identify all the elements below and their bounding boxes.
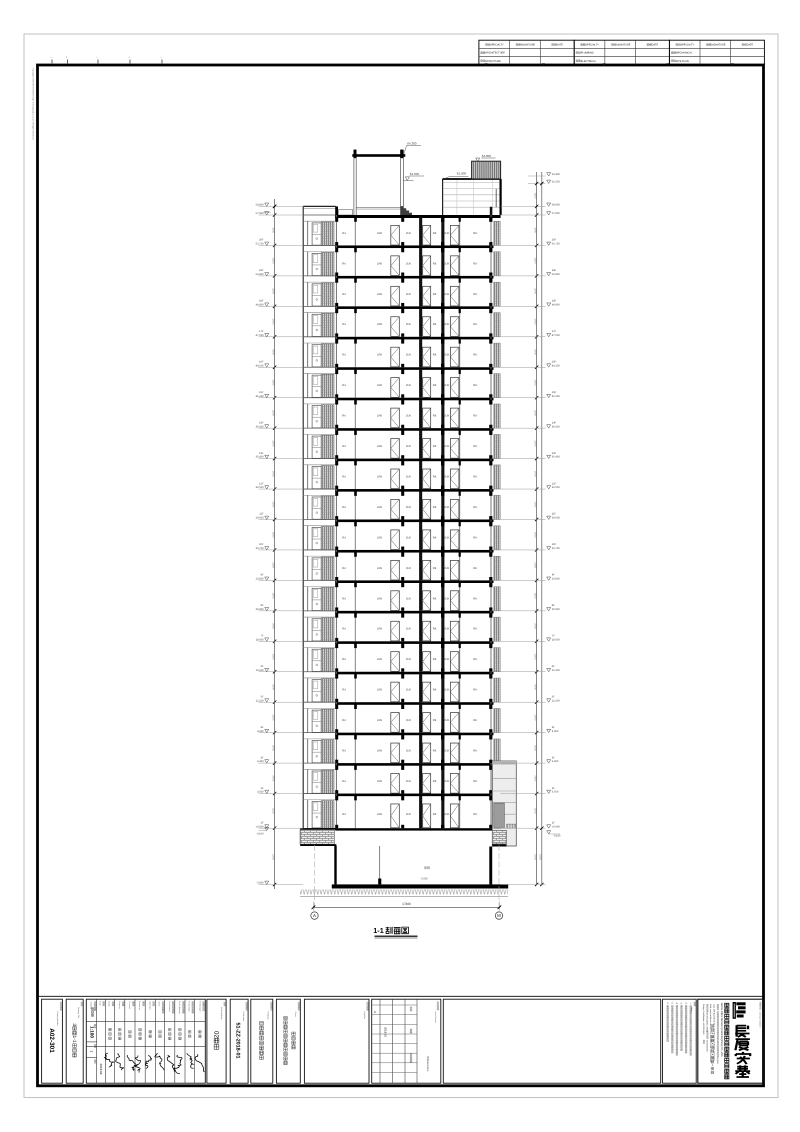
svg-text:15.150: 15.150 bbox=[552, 669, 560, 672]
svg-text:10F: 10F bbox=[259, 543, 264, 546]
svg-text:5300: 5300 bbox=[533, 854, 536, 860]
svg-text:2UK: 2UK bbox=[444, 536, 449, 539]
svg-text:2UK: 2UK bbox=[406, 445, 411, 448]
svg-text:7F: 7F bbox=[261, 635, 264, 638]
svg-text:18.050: 18.050 bbox=[552, 638, 560, 641]
svg-text:2F: 2F bbox=[261, 787, 264, 790]
svg-text:2UK: 2UK bbox=[444, 354, 449, 357]
svg-text:2900: 2900 bbox=[533, 319, 536, 325]
svg-text:3.550: 3.550 bbox=[257, 791, 264, 794]
svg-text:2900: 2900 bbox=[271, 440, 274, 446]
svg-text:32.550: 32.550 bbox=[552, 486, 560, 489]
svg-text:-5.950: -5.950 bbox=[420, 878, 428, 881]
svg-text:ELECTRICAL: ELECTRICAL bbox=[581, 60, 597, 63]
svg-text:R8: R8 bbox=[433, 597, 437, 600]
svg-text:Checked: Checked bbox=[128, 1001, 131, 1008]
svg-text:A02-301: A02-301 bbox=[48, 1028, 55, 1053]
svg-text:LR8: LR8 bbox=[377, 262, 382, 265]
svg-text:A: A bbox=[313, 913, 316, 918]
svg-text:2850: 2850 bbox=[533, 193, 536, 199]
svg-text:R8: R8 bbox=[433, 750, 437, 753]
svg-text:M: M bbox=[497, 913, 501, 918]
svg-text:2UK: 2UK bbox=[406, 384, 411, 387]
svg-text:LR8: LR8 bbox=[377, 780, 382, 783]
svg-text:35.450: 35.450 bbox=[256, 456, 264, 459]
svg-text:15F: 15F bbox=[552, 391, 557, 394]
svg-text:52.850: 52.850 bbox=[552, 273, 560, 276]
svg-text:49.950: 49.950 bbox=[552, 303, 560, 306]
svg-text:LR8: LR8 bbox=[377, 689, 382, 692]
svg-text:23.850: 23.850 bbox=[256, 578, 264, 581]
svg-text:19F: 19F bbox=[552, 269, 557, 272]
svg-text:R8: R8 bbox=[433, 354, 437, 357]
svg-text:2UK: 2UK bbox=[406, 536, 411, 539]
svg-text:12F: 12F bbox=[552, 482, 557, 485]
svg-text:41.250: 41.250 bbox=[552, 395, 560, 398]
svg-text:±0.000: ±0.000 bbox=[552, 825, 560, 828]
svg-text:17F: 17F bbox=[552, 330, 557, 333]
svg-text:32.550: 32.550 bbox=[256, 486, 264, 489]
svg-text:35.450: 35.450 bbox=[552, 456, 560, 459]
svg-text:9F: 9F bbox=[261, 574, 264, 577]
svg-text:2UK: 2UK bbox=[406, 813, 411, 816]
svg-text:LR8: LR8 bbox=[377, 750, 382, 753]
svg-text:R4: R4 bbox=[342, 445, 346, 448]
svg-text:9.350: 9.350 bbox=[552, 730, 559, 733]
svg-text:9F: 9F bbox=[552, 574, 555, 577]
svg-text:11F: 11F bbox=[552, 513, 557, 516]
svg-text:PLUMBING: PLUMBING bbox=[581, 52, 594, 55]
svg-text:2900: 2900 bbox=[533, 593, 536, 599]
svg-text:R8: R8 bbox=[433, 475, 437, 478]
svg-text:2900: 2900 bbox=[533, 715, 536, 721]
svg-text:2UK: 2UK bbox=[444, 475, 449, 478]
svg-text:LR8: LR8 bbox=[377, 475, 382, 478]
svg-text:2UK: 2UK bbox=[444, 323, 449, 326]
svg-text:63.300: 63.300 bbox=[552, 173, 560, 176]
svg-text:2900: 2900 bbox=[271, 684, 274, 690]
svg-text:R8: R8 bbox=[433, 445, 437, 448]
svg-text:2UK: 2UK bbox=[406, 354, 411, 357]
svg-text:R4: R4 bbox=[342, 323, 346, 326]
svg-text:R8: R8 bbox=[473, 813, 477, 816]
svg-text:2UK: 2UK bbox=[406, 689, 411, 692]
svg-text:2900: 2900 bbox=[533, 227, 536, 233]
svg-text:R8: R8 bbox=[473, 780, 477, 783]
svg-text:Prj Manager: Prj Manager bbox=[198, 1001, 201, 1012]
svg-text:2UK: 2UK bbox=[444, 780, 449, 783]
svg-text:R4: R4 bbox=[342, 232, 346, 235]
svg-text:2900: 2900 bbox=[271, 288, 274, 294]
svg-text:LR8: LR8 bbox=[377, 445, 382, 448]
svg-text:Date: Date bbox=[98, 1001, 101, 1005]
svg-text:R4: R4 bbox=[342, 262, 346, 265]
svg-text:R8: R8 bbox=[473, 567, 477, 570]
svg-text:20F: 20F bbox=[552, 239, 557, 242]
svg-text:2UK: 2UK bbox=[406, 506, 411, 509]
svg-text:R8: R8 bbox=[433, 293, 437, 296]
svg-text:2900: 2900 bbox=[271, 562, 274, 568]
svg-text:49.950: 49.950 bbox=[256, 303, 264, 306]
svg-text:2900: 2900 bbox=[533, 380, 536, 386]
svg-text:1F: 1F bbox=[552, 821, 555, 824]
svg-text:R8: R8 bbox=[473, 506, 477, 509]
svg-text:20.950: 20.950 bbox=[256, 608, 264, 611]
svg-text:Prj Number: Prj Number bbox=[242, 1012, 245, 1022]
svg-text:LR8: LR8 bbox=[377, 536, 382, 539]
svg-text:2900: 2900 bbox=[271, 715, 274, 721]
svg-text:5F: 5F bbox=[261, 695, 264, 698]
svg-text:4F: 4F bbox=[261, 726, 264, 729]
svg-text:2UK: 2UK bbox=[444, 506, 449, 509]
svg-text:2900: 2900 bbox=[533, 258, 536, 264]
svg-text:A Design Institution: A Design Institution bbox=[759, 1011, 762, 1027]
svg-text:2900: 2900 bbox=[533, 775, 536, 781]
svg-text:R8: R8 bbox=[473, 384, 477, 387]
svg-text:R4: R4 bbox=[342, 384, 346, 387]
svg-text:R8: R8 bbox=[433, 689, 437, 692]
svg-text:LR8: LR8 bbox=[377, 384, 382, 387]
svg-text:57.850: 57.850 bbox=[552, 212, 560, 215]
svg-text:2UK: 2UK bbox=[406, 475, 411, 478]
svg-text:R8: R8 bbox=[433, 415, 437, 418]
svg-text:1: 1 bbox=[90, 1051, 94, 1053]
svg-text:R4: R4 bbox=[342, 536, 346, 539]
svg-text:R8: R8 bbox=[473, 415, 477, 418]
svg-text:10F: 10F bbox=[552, 543, 557, 546]
svg-text:2UK: 2UK bbox=[406, 293, 411, 296]
svg-text:±0.000: ±0.000 bbox=[256, 825, 264, 828]
svg-text:2900: 2900 bbox=[271, 227, 274, 233]
svg-text:61.550: 61.550 bbox=[410, 172, 420, 176]
svg-text:LR8: LR8 bbox=[377, 354, 382, 357]
svg-text:DATE: DATE bbox=[747, 44, 754, 47]
svg-text:2UK: 2UK bbox=[444, 384, 449, 387]
svg-text:R8: R8 bbox=[433, 628, 437, 631]
svg-text:2UK: 2UK bbox=[406, 262, 411, 265]
svg-text:R8: R8 bbox=[473, 536, 477, 539]
svg-text:R8: R8 bbox=[433, 506, 437, 509]
svg-text:R4: R4 bbox=[342, 658, 346, 661]
svg-text:1-1: 1-1 bbox=[373, 926, 383, 935]
svg-text:Key Plan: Key Plan bbox=[363, 1012, 366, 1020]
svg-text:4F: 4F bbox=[552, 726, 555, 729]
svg-text:R8: R8 bbox=[473, 719, 477, 722]
svg-text:2900: 2900 bbox=[533, 745, 536, 751]
svg-text:51-ZZ-2018-01: 51-ZZ-2018-01 bbox=[235, 1023, 241, 1059]
svg-text:SPECIALTY: SPECIALTY bbox=[585, 44, 599, 47]
svg-text:12F: 12F bbox=[259, 482, 264, 485]
svg-text:R8: R8 bbox=[473, 658, 477, 661]
svg-text:44.150: 44.150 bbox=[552, 364, 560, 367]
svg-text:Prj Manager: Prj Manager bbox=[187, 1001, 190, 1012]
svg-text:3F: 3F bbox=[261, 756, 264, 759]
svg-text:LR8: LR8 bbox=[377, 813, 382, 816]
svg-text:R4: R4 bbox=[342, 567, 346, 570]
svg-text:2UK: 2UK bbox=[444, 813, 449, 816]
svg-text:R4: R4 bbox=[342, 719, 346, 722]
svg-text:Examined: Examined bbox=[138, 1001, 141, 1009]
svg-text:61.500: 61.500 bbox=[457, 172, 467, 176]
svg-text:LR8: LR8 bbox=[377, 567, 382, 570]
svg-text:REMARKS: REMARKS bbox=[426, 1061, 429, 1072]
svg-text:47.050: 47.050 bbox=[552, 334, 560, 337]
svg-text:R8: R8 bbox=[433, 384, 437, 387]
svg-text:2018.02: 2018.02 bbox=[384, 1027, 388, 1038]
svg-text:2018.02: 2018.02 bbox=[99, 1064, 103, 1075]
svg-text:Ex Prj Manage: Ex Prj Manage bbox=[178, 1001, 181, 1013]
svg-text:R8: R8 bbox=[473, 293, 477, 296]
svg-text:2UK: 2UK bbox=[406, 567, 411, 570]
svg-text:R8: R8 bbox=[433, 813, 437, 816]
svg-text:6.450: 6.450 bbox=[257, 760, 264, 763]
svg-text:6F: 6F bbox=[552, 665, 555, 668]
svg-text:401147: 401147 bbox=[716, 1057, 719, 1065]
svg-text:LR8: LR8 bbox=[377, 232, 382, 235]
svg-text:17400: 17400 bbox=[402, 902, 411, 906]
svg-text:14F: 14F bbox=[259, 421, 264, 424]
svg-text:13F: 13F bbox=[259, 452, 264, 455]
svg-text:20.950: 20.950 bbox=[552, 608, 560, 611]
svg-text:2UK: 2UK bbox=[406, 415, 411, 418]
svg-text:2UK: 2UK bbox=[444, 689, 449, 692]
svg-text:R8: R8 bbox=[433, 536, 437, 539]
svg-text:2900: 2900 bbox=[533, 562, 536, 568]
svg-text:2UK: 2UK bbox=[444, 415, 449, 418]
svg-text:12.250: 12.250 bbox=[552, 699, 560, 702]
svg-text:58.900: 58.900 bbox=[552, 204, 560, 207]
svg-text:R8: R8 bbox=[473, 597, 477, 600]
svg-text:2UK: 2UK bbox=[406, 628, 411, 631]
svg-text:2UK: 2UK bbox=[444, 628, 449, 631]
svg-text:5300: 5300 bbox=[271, 854, 274, 860]
svg-text:R4: R4 bbox=[342, 354, 346, 357]
svg-text:LR8: LR8 bbox=[377, 719, 382, 722]
svg-text:R8: R8 bbox=[473, 445, 477, 448]
svg-text:R8: R8 bbox=[433, 262, 437, 265]
svg-text:Approved: Approved bbox=[148, 1001, 151, 1009]
svg-text:R8: R8 bbox=[433, 232, 437, 235]
svg-text:2900: 2900 bbox=[271, 319, 274, 325]
svg-text:LR8: LR8 bbox=[377, 506, 382, 509]
svg-text:R8: R8 bbox=[473, 262, 477, 265]
svg-text:11F: 11F bbox=[259, 513, 264, 516]
svg-text:2F: 2F bbox=[552, 787, 555, 790]
svg-text:2UK: 2UK bbox=[406, 658, 411, 661]
svg-text:2900: 2900 bbox=[271, 623, 274, 629]
svg-text:38.350: 38.350 bbox=[552, 425, 560, 428]
svg-text:2900: 2900 bbox=[271, 258, 274, 264]
svg-text:1: 1 bbox=[373, 1011, 377, 1013]
svg-text:2UK: 2UK bbox=[444, 719, 449, 722]
svg-text:R8: R8 bbox=[473, 232, 477, 235]
svg-text:Web: www.archinds.com Tel: 023: Web: www.archinds.com Tel: 023-63080000 … bbox=[709, 1004, 712, 1063]
svg-text:2UK: 2UK bbox=[444, 597, 449, 600]
svg-text:DATE: DATE bbox=[652, 44, 659, 47]
svg-text:1-1: 1-1 bbox=[71, 1036, 77, 1043]
svg-text:38.350: 38.350 bbox=[256, 425, 264, 428]
svg-text:26.750: 26.750 bbox=[256, 547, 264, 550]
svg-text:7F: 7F bbox=[552, 635, 555, 638]
svg-text:2900: 2900 bbox=[533, 440, 536, 446]
svg-text:: A150001688: : A150001688 bbox=[706, 1039, 709, 1052]
svg-text:LR8: LR8 bbox=[377, 628, 382, 631]
svg-text:2900: 2900 bbox=[533, 410, 536, 416]
svg-text:2900: 2900 bbox=[533, 471, 536, 477]
svg-text:-0.100: -0.100 bbox=[256, 833, 264, 836]
svg-text:23.850: 23.850 bbox=[552, 578, 560, 581]
svg-text:MECHANICAL: MECHANICAL bbox=[676, 52, 693, 55]
svg-text:SPECIALTY: SPECIALTY bbox=[681, 44, 695, 47]
svg-text:13F: 13F bbox=[552, 452, 557, 455]
svg-text:2UK: 2UK bbox=[444, 262, 449, 265]
svg-text:2900: 2900 bbox=[271, 745, 274, 751]
svg-text:55.750: 55.750 bbox=[552, 243, 560, 246]
svg-text:2UK: 2UK bbox=[444, 567, 449, 570]
svg-text:17F: 17F bbox=[259, 330, 264, 333]
svg-text:2900: 2900 bbox=[533, 501, 536, 507]
svg-text:2900: 2900 bbox=[533, 532, 536, 538]
svg-text:52.850: 52.850 bbox=[256, 273, 264, 276]
svg-text:DATE: DATE bbox=[556, 44, 563, 47]
svg-text:Drawing Title: Drawing Title bbox=[77, 1007, 80, 1018]
svg-text:2900: 2900 bbox=[271, 410, 274, 416]
svg-text:12.250: 12.250 bbox=[256, 699, 264, 702]
svg-text:R8: R8 bbox=[433, 780, 437, 783]
svg-text:(59.85): (59.85) bbox=[264, 211, 271, 214]
svg-text:2900: 2900 bbox=[271, 654, 274, 660]
svg-text:Building Name: Building Name bbox=[220, 1007, 223, 1019]
svg-text:02: 02 bbox=[212, 1031, 219, 1038]
svg-text:14F: 14F bbox=[552, 421, 557, 424]
svg-text:15F: 15F bbox=[259, 391, 264, 394]
svg-text:Drawing Number: Drawing Number bbox=[56, 1012, 59, 1027]
svg-text:2900: 2900 bbox=[533, 684, 536, 690]
svg-text:18F: 18F bbox=[552, 300, 557, 303]
svg-text:18F: 18F bbox=[259, 300, 264, 303]
svg-text:R8: R8 bbox=[433, 719, 437, 722]
svg-text:58.900: 58.900 bbox=[256, 204, 264, 207]
svg-text:2900: 2900 bbox=[533, 288, 536, 294]
svg-text:ARCHITECTURE: ARCHITECTURE bbox=[485, 52, 505, 55]
svg-text:18.050: 18.050 bbox=[256, 638, 264, 641]
svg-text:R8: R8 bbox=[433, 323, 437, 326]
svg-text:Client: Client bbox=[294, 1012, 297, 1017]
svg-text:29.650: 29.650 bbox=[256, 517, 264, 520]
svg-text:41.250: 41.250 bbox=[256, 395, 264, 398]
svg-text:2900: 2900 bbox=[271, 501, 274, 507]
svg-text:5F: 5F bbox=[552, 695, 555, 698]
svg-text:R4: R4 bbox=[342, 628, 346, 631]
svg-text:2900: 2900 bbox=[271, 349, 274, 355]
svg-text:2900: 2900 bbox=[533, 623, 536, 629]
svg-text:Issue Record: Issue Record bbox=[434, 1012, 437, 1023]
svg-text:20F: 20F bbox=[259, 239, 264, 242]
svg-text:2UK: 2UK bbox=[444, 750, 449, 753]
svg-text:2UK: 2UK bbox=[406, 780, 411, 783]
svg-text:6F: 6F bbox=[261, 665, 264, 668]
svg-text:3F: 3F bbox=[552, 756, 555, 759]
svg-text:16F: 16F bbox=[259, 360, 264, 363]
svg-text:2UK: 2UK bbox=[406, 750, 411, 753]
svg-text:2UK: 2UK bbox=[406, 323, 411, 326]
svg-text:6.450: 6.450 bbox=[552, 760, 559, 763]
svg-text:2900: 2900 bbox=[271, 775, 274, 781]
svg-text:R4: R4 bbox=[342, 506, 346, 509]
svg-text:3550: 3550 bbox=[271, 808, 274, 814]
svg-text:LR8: LR8 bbox=[377, 415, 382, 418]
svg-text:R8: R8 bbox=[473, 354, 477, 357]
svg-text:SIGNATURE: SIGNATURE bbox=[711, 44, 726, 47]
svg-text:2900: 2900 bbox=[271, 532, 274, 538]
svg-text:R4: R4 bbox=[342, 597, 346, 600]
svg-text:2900: 2900 bbox=[271, 380, 274, 386]
svg-text:55.750: 55.750 bbox=[256, 243, 264, 246]
svg-text:2UK: 2UK bbox=[444, 293, 449, 296]
svg-text:3.550: 3.550 bbox=[552, 791, 559, 794]
svg-text:16F: 16F bbox=[552, 360, 557, 363]
svg-text:Copyright 2018 ARCH-INDS Desig: Copyright 2018 ARCH-INDS Design (Chongqi… bbox=[32, 68, 35, 141]
svg-text:26.750: 26.750 bbox=[552, 547, 560, 550]
svg-text:64.300: 64.300 bbox=[407, 141, 417, 145]
svg-text:Pro Archtect: Pro Archtect bbox=[168, 1001, 171, 1012]
svg-text:R4: R4 bbox=[342, 780, 346, 783]
svg-text:R8: R8 bbox=[473, 628, 477, 631]
svg-text:R8: R8 bbox=[473, 689, 477, 692]
svg-text:LR8: LR8 bbox=[377, 323, 382, 326]
svg-text:2900: 2900 bbox=[533, 349, 536, 355]
svg-text:R4: R4 bbox=[342, 293, 346, 296]
svg-text:Chief: Chief bbox=[158, 1001, 161, 1006]
svg-text:R8: R8 bbox=[433, 567, 437, 570]
svg-text:R8: R8 bbox=[473, 475, 477, 478]
svg-text:Add: 19F,Jinyi Block,No.1 Xinx: Add: 19F,Jinyi Block,No.1 Xinxi Road,Yub… bbox=[713, 1004, 716, 1061]
svg-text:SIGNATURE: SIGNATURE bbox=[616, 44, 631, 47]
svg-text:LR8: LR8 bbox=[377, 658, 382, 661]
svg-text:SITE PLAN: SITE PLAN bbox=[676, 60, 689, 63]
svg-text:1:100: 1:100 bbox=[90, 1026, 95, 1038]
svg-text:2900: 2900 bbox=[271, 471, 274, 477]
svg-text:8F: 8F bbox=[552, 604, 555, 607]
svg-text:Drawn: Drawn bbox=[108, 1001, 111, 1006]
svg-text:64.050: 64.050 bbox=[482, 154, 492, 158]
svg-text:R4: R4 bbox=[342, 750, 346, 753]
svg-text:STRUCTURE: STRUCTURE bbox=[485, 60, 501, 63]
svg-text:SPECIALTY: SPECIALTY bbox=[490, 44, 504, 47]
svg-text:15.150: 15.150 bbox=[256, 669, 264, 672]
svg-text:29.650: 29.650 bbox=[552, 517, 560, 520]
svg-text:5300: 5300 bbox=[539, 854, 542, 860]
svg-text:61.550: 61.550 bbox=[552, 181, 560, 184]
svg-text:1F: 1F bbox=[261, 821, 264, 824]
svg-text:47.050: 47.050 bbox=[256, 334, 264, 337]
svg-text:Prj Name: Prj Name bbox=[267, 1012, 270, 1020]
svg-text:R8: R8 bbox=[433, 658, 437, 661]
svg-text:2UK: 2UK bbox=[406, 719, 411, 722]
svg-text:2UK: 2UK bbox=[444, 658, 449, 661]
svg-text:2900: 2900 bbox=[533, 654, 536, 660]
svg-text:R4: R4 bbox=[342, 689, 346, 692]
svg-text:2UK: 2UK bbox=[406, 232, 411, 235]
svg-text:ARCH-INDS DESIGN (CHONGQING) C: ARCH-INDS DESIGN (CHONGQING) CO.,LTD. bbox=[720, 1003, 723, 1058]
svg-text:R8: R8 bbox=[473, 750, 477, 753]
svg-text:R4: R4 bbox=[342, 415, 346, 418]
svg-text:2UK: 2UK bbox=[444, 445, 449, 448]
svg-text:2UK: 2UK bbox=[406, 597, 411, 600]
svg-text:2UK: 2UK bbox=[444, 232, 449, 235]
svg-text:-0.100: -0.100 bbox=[553, 834, 561, 837]
svg-text:SIGNATURE: SIGNATURE bbox=[521, 44, 536, 47]
